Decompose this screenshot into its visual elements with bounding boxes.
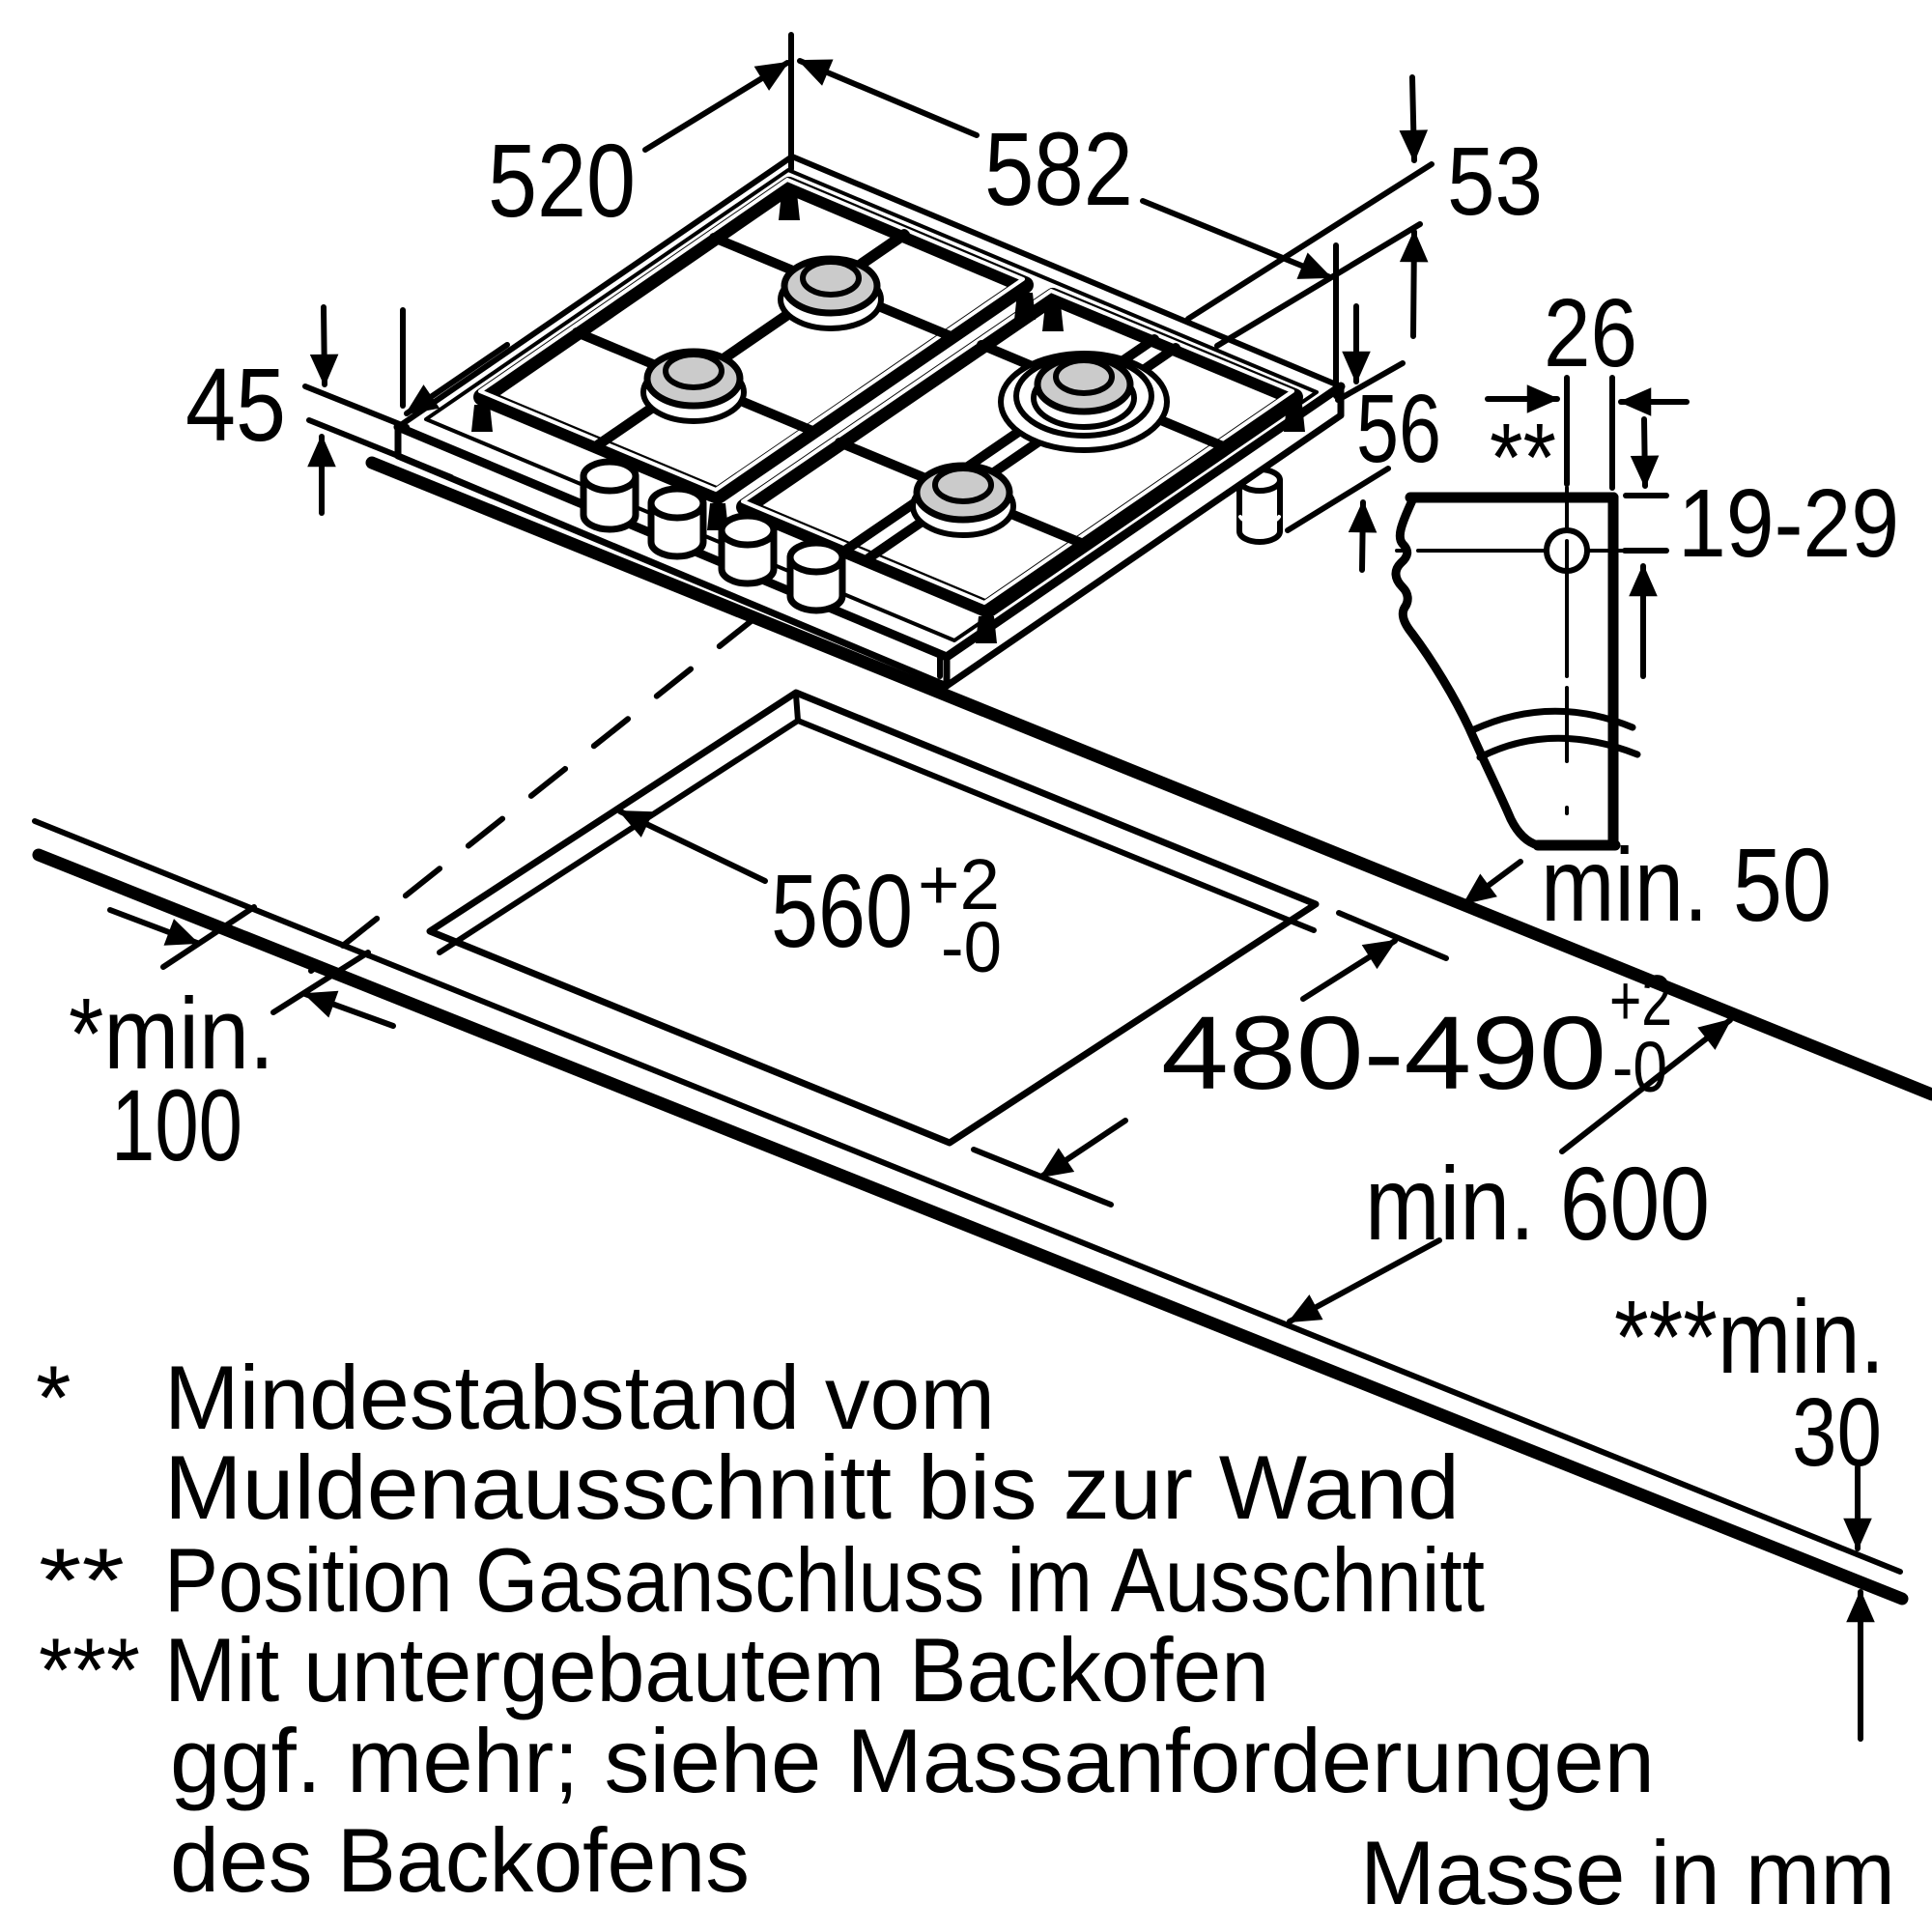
svg-text:Mindestabstand vom: Mindestabstand vom bbox=[164, 1347, 995, 1448]
svg-text:***: *** bbox=[39, 1619, 140, 1720]
svg-text:Muldenausschnitt bis zur Wand: Muldenausschnitt bis zur Wand bbox=[164, 1436, 1460, 1538]
svg-text:min. 600: min. 600 bbox=[1365, 1145, 1710, 1262]
svg-text:Position Gasanschluss im Aussc: Position Gasanschluss im Ausschnitt bbox=[164, 1529, 1485, 1631]
svg-text:56: 56 bbox=[1356, 375, 1441, 483]
svg-text:520: 520 bbox=[488, 122, 636, 239]
svg-text:45: 45 bbox=[185, 346, 286, 463]
svg-text:**: ** bbox=[39, 1529, 125, 1631]
svg-text:des Backofens: des Backofens bbox=[170, 1809, 750, 1911]
svg-text:26: 26 bbox=[1544, 279, 1637, 387]
svg-text:480-490: 480-490 bbox=[1161, 994, 1606, 1111]
svg-text:Mit untergebautem Backofen: Mit untergebautem Backofen bbox=[164, 1619, 1269, 1720]
svg-text:Masse in mm: Masse in mm bbox=[1360, 1822, 1895, 1923]
svg-text:ggf. mehr; siehe Massanforderu: ggf. mehr; siehe Massanforderungen bbox=[170, 1710, 1655, 1811]
svg-text:-0: -0 bbox=[1612, 1027, 1667, 1107]
svg-text:-0: -0 bbox=[941, 907, 1002, 987]
svg-text:*: * bbox=[36, 1347, 71, 1448]
svg-text:582: 582 bbox=[984, 110, 1133, 227]
svg-text:30: 30 bbox=[1792, 1378, 1882, 1487]
svg-text:100: 100 bbox=[111, 1069, 242, 1182]
svg-text:53: 53 bbox=[1447, 128, 1543, 236]
svg-text:560: 560 bbox=[771, 852, 913, 969]
svg-text:***min.: ***min. bbox=[1614, 1278, 1885, 1395]
svg-text:19-29: 19-29 bbox=[1678, 469, 1899, 578]
